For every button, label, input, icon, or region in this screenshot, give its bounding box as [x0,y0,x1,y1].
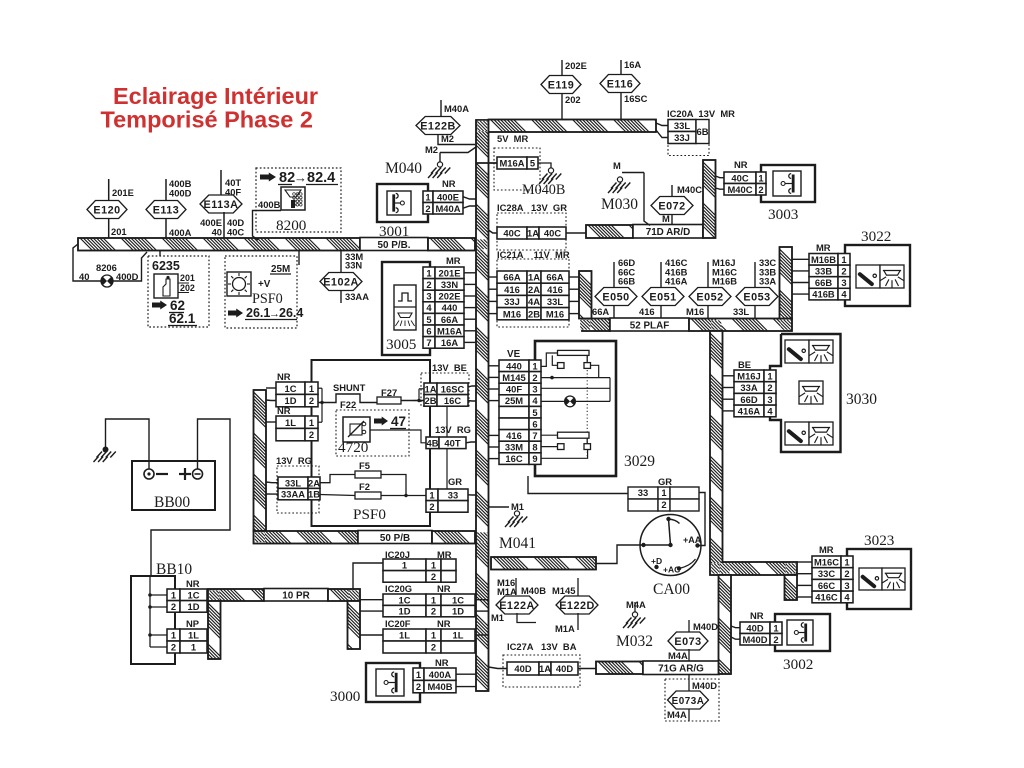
svg-text:E052: E052 [696,292,723,304]
svg-text:40F: 40F [506,384,522,395]
svg-text:M40C: M40C [727,184,752,195]
svg-text:E051: E051 [649,292,676,304]
svg-text:1: 1 [429,489,434,500]
svg-text:16SC: 16SC [624,93,648,104]
svg-text:M: M [613,160,621,171]
svg-text:1: 1 [425,191,430,202]
svg-text:202E: 202E [565,60,587,71]
svg-text:E102A: E102A [323,277,359,289]
svg-text:3: 3 [426,291,431,302]
svg-text:7: 7 [532,430,537,441]
svg-text:1: 1 [416,669,421,680]
svg-text:33AA: 33AA [345,291,369,302]
svg-text:202: 202 [180,283,195,293]
svg-text:1C: 1C [188,589,200,600]
svg-text:71D AR/D: 71D AR/D [646,227,691,238]
svg-text:M1A: M1A [555,623,575,634]
svg-text:F27: F27 [381,387,397,398]
svg-text:40C: 40C [227,227,244,238]
svg-text:4: 4 [844,592,850,603]
svg-text:16A: 16A [624,59,641,70]
svg-text:62.1: 62.1 [169,311,196,326]
svg-text:CA00: CA00 [653,581,690,598]
svg-text:1L: 1L [188,630,199,641]
svg-text:5: 5 [530,158,535,169]
svg-text:M: M [662,213,670,224]
svg-text:13V RG: 13V RG [276,455,312,466]
svg-text:3: 3 [767,394,772,405]
svg-text:201E: 201E [439,267,461,278]
svg-text:416A: 416A [738,406,761,417]
svg-text:33N: 33N [441,279,458,290]
svg-text:2: 2 [431,571,436,582]
svg-text:33L: 33L [285,477,301,488]
svg-text:1: 1 [532,360,537,371]
svg-text:1D: 1D [399,606,411,617]
svg-text:IC21A 11V MR: IC21A 11V MR [497,249,570,260]
svg-text:M145: M145 [502,372,525,383]
svg-text:5: 5 [532,407,537,418]
svg-text:2A: 2A [528,284,540,295]
svg-text:66B: 66B [815,277,832,288]
svg-text:IC20A 13V MR: IC20A 13V MR [667,108,735,119]
svg-text:9: 9 [532,453,537,464]
svg-text:NR: NR [186,578,200,589]
svg-text:1: 1 [309,417,314,428]
svg-text:33B: 33B [815,266,832,277]
svg-text:25M: 25M [271,264,290,275]
svg-text:1A: 1A [539,663,551,674]
svg-text:2: 2 [309,429,314,440]
svg-text:NR: NR [750,610,764,621]
svg-text:1D: 1D [452,606,464,617]
svg-text:7: 7 [426,337,431,348]
svg-text:SHUNT: SHUNT [333,382,366,393]
svg-text:2: 2 [661,499,666,510]
svg-text:66A: 66A [592,306,609,317]
svg-text:201: 201 [180,273,195,283]
svg-text:M40D: M40D [692,680,717,691]
svg-text:2B: 2B [425,395,437,406]
svg-text:E073: E073 [674,636,701,648]
svg-text:E053: E053 [743,292,770,304]
svg-text:BE: BE [738,359,751,370]
svg-text:40C: 40C [544,228,561,239]
svg-text:52 PLAF: 52 PLAF [630,320,669,331]
svg-text:M4A: M4A [626,599,646,610]
svg-text:1: 1 [171,630,176,641]
svg-text:M040: M040 [385,160,422,177]
svg-text:66A: 66A [503,272,520,283]
svg-text:M032: M032 [616,633,653,650]
svg-text:IC28A 13V GR: IC28A 13V GR [497,202,567,213]
svg-text:1: 1 [171,589,176,600]
svg-text:416: 416 [639,306,655,317]
svg-text:F2: F2 [359,481,370,492]
svg-text:4: 4 [767,406,773,417]
svg-text:E119: E119 [548,80,575,92]
svg-text:8: 8 [532,442,537,453]
svg-text:M16B: M16B [712,276,737,287]
svg-text:4: 4 [841,289,847,300]
svg-text:3: 3 [532,384,537,395]
svg-text:3005: 3005 [386,336,416,353]
svg-text:10 PR: 10 PR [282,591,309,602]
svg-text:16A: 16A [441,337,458,348]
svg-text:M40D: M40D [742,634,767,645]
svg-text:71G AR/G: 71G AR/G [658,664,704,675]
svg-text:201E: 201E [112,187,134,198]
svg-text:202E: 202E [439,291,461,302]
svg-text:16C: 16C [505,453,522,464]
svg-text:Eclairage Intérieur: Eclairage Intérieur [113,83,318,109]
svg-text:2: 2 [841,266,846,277]
svg-text:1L: 1L [453,630,464,641]
svg-text:M145: M145 [552,585,575,596]
svg-text:GR: GR [658,476,672,487]
svg-text:66C: 66C [818,580,835,591]
svg-text:NR: NR [277,405,291,416]
svg-text:1: 1 [309,383,314,394]
svg-text:4720: 4720 [338,439,369,456]
svg-text:3030: 3030 [846,391,877,408]
svg-text:+AC: +AC [663,565,680,575]
svg-text:400A: 400A [169,227,192,238]
svg-text:NR: NR [442,178,456,189]
svg-text:E122B: E122B [420,121,456,133]
svg-text:1C: 1C [452,594,464,605]
svg-text:+V: +V [258,279,271,290]
svg-text:M40B: M40B [521,585,546,596]
svg-text:2: 2 [171,642,176,653]
svg-text:2: 2 [758,184,763,195]
svg-text:13V RG: 13V RG [435,424,471,435]
svg-text:F5: F5 [359,460,370,471]
svg-text:GR: GR [448,476,462,487]
svg-text:33C: 33C [818,568,835,579]
svg-text:M040B: M040B [522,182,565,198]
svg-text:3029: 3029 [624,453,655,470]
svg-text:E050: E050 [602,292,629,304]
svg-text:M40A: M40A [444,103,469,114]
svg-text:40C: 40C [731,172,748,183]
svg-text:3023: 3023 [864,532,894,549]
svg-text:+AA: +AA [683,535,702,545]
svg-text:50 P/B.: 50 P/B. [378,240,411,251]
svg-text:416: 416 [547,284,563,295]
svg-text:VE: VE [507,349,521,360]
svg-text:4A: 4A [528,296,540,307]
svg-text:47: 47 [391,414,406,429]
svg-text:416A: 416A [665,276,688,287]
svg-text:M2: M2 [441,133,454,144]
svg-text:1: 1 [767,370,772,381]
svg-text:13V BE: 13V BE [432,362,467,373]
svg-text:8200: 8200 [276,217,307,234]
svg-text:1: 1 [841,254,846,265]
svg-text:MR: MR [819,544,834,555]
svg-text:416C: 416C [815,592,838,603]
svg-text:1D: 1D [188,601,200,612]
svg-text:440: 440 [442,302,458,313]
svg-text:40D: 40D [746,622,763,633]
svg-text:3: 3 [841,277,846,288]
svg-text:26.4: 26.4 [279,306,303,320]
svg-text:1: 1 [431,559,436,570]
svg-text:1B: 1B [308,489,320,500]
svg-text:1: 1 [844,556,849,567]
svg-text:F22: F22 [340,399,356,410]
svg-text:E116: E116 [607,79,634,91]
svg-text:4B: 4B [427,437,439,448]
svg-text:1L: 1L [399,630,410,641]
svg-text:6: 6 [426,325,431,336]
svg-text:26.1: 26.1 [246,306,270,320]
svg-text:2: 2 [844,568,849,579]
svg-text:33J: 33J [674,132,690,143]
svg-text:66B: 66B [618,276,635,287]
svg-text:3000: 3000 [330,688,361,705]
svg-text:1: 1 [426,267,431,278]
svg-text:M16: M16 [546,308,564,319]
svg-text:82: 82 [279,170,295,186]
svg-text:40C: 40C [503,228,520,239]
svg-text:40D: 40D [556,663,573,674]
svg-text:33L: 33L [547,296,563,307]
svg-text:2: 2 [773,634,778,645]
svg-text:IC20G: IC20G [385,583,412,594]
svg-text:1A: 1A [527,228,539,239]
svg-text:4: 4 [532,395,538,406]
svg-text:M16C: M16C [814,556,839,567]
svg-text:M041: M041 [499,535,536,552]
svg-text:1: 1 [402,559,407,570]
svg-text:1C: 1C [285,383,297,394]
svg-text:Temporisé Phase 2: Temporisé Phase 2 [101,107,313,133]
svg-text:201: 201 [111,226,127,237]
svg-text:IC27A 13V BA: IC27A 13V BA [507,641,577,652]
svg-text:1: 1 [661,487,666,498]
svg-text:NR: NR [277,371,291,382]
svg-text:E113: E113 [153,205,180,217]
svg-text:2: 2 [431,606,436,617]
svg-text:16C: 16C [444,395,461,406]
svg-text:33A: 33A [740,382,757,393]
svg-text:M4A: M4A [668,650,688,661]
svg-text:16SC: 16SC [441,383,465,394]
svg-text:66D: 66D [740,394,757,405]
svg-text:1A: 1A [528,272,540,283]
svg-text:25M: 25M [505,395,523,406]
svg-text:3002: 3002 [783,656,813,673]
svg-text:2: 2 [416,681,421,692]
svg-text:NR: NR [437,583,451,594]
svg-text:416: 416 [504,284,520,295]
svg-text:M1: M1 [491,612,504,623]
svg-text:M4A: M4A [667,709,687,720]
svg-text:E072: E072 [658,201,685,213]
svg-text:2: 2 [425,203,430,214]
svg-text:2: 2 [532,372,537,383]
svg-text:33M: 33M [505,442,523,453]
svg-text:6235: 6235 [152,259,180,273]
svg-text:202: 202 [565,94,581,105]
svg-text:3001: 3001 [379,223,409,240]
svg-text:M16A: M16A [499,158,524,169]
svg-text:3003: 3003 [768,206,798,223]
svg-text:8206: 8206 [96,262,117,273]
svg-text:1: 1 [191,642,196,653]
svg-text:NR: NR [437,618,451,629]
svg-text:E073A: E073A [672,696,705,707]
svg-text:M40B: M40B [427,681,452,692]
svg-text:3: 3 [844,580,849,591]
svg-text:E122D: E122D [559,600,595,612]
svg-text:E120: E120 [93,205,120,217]
svg-text:M16: M16 [503,308,521,319]
svg-text:1: 1 [431,594,436,605]
svg-text:1: 1 [773,622,778,633]
svg-text:+D: +D [651,556,662,566]
svg-text:PSF0: PSF0 [353,506,386,523]
svg-text:1C: 1C [399,594,411,605]
svg-text:M16B: M16B [811,254,836,265]
svg-text:40: 40 [79,271,89,282]
svg-text:2: 2 [429,501,434,512]
svg-text:400D: 400D [169,188,192,199]
svg-text:400D: 400D [116,271,139,282]
svg-text:416: 416 [506,430,522,441]
svg-text:33N: 33N [345,260,362,271]
svg-text:M16J: M16J [737,370,760,381]
svg-text:M16A: M16A [437,325,462,336]
svg-text:E113A: E113A [204,199,239,211]
svg-text:2: 2 [767,382,772,393]
svg-text:M40A: M40A [435,203,460,214]
svg-text:IC20F: IC20F [385,618,411,629]
svg-text:M16: M16 [686,306,704,317]
svg-text:6: 6 [532,418,537,429]
svg-text:NR: NR [435,657,449,668]
svg-text:NR: NR [734,159,748,170]
svg-text:66A: 66A [546,272,563,283]
svg-text:MR: MR [816,242,831,253]
svg-text:2: 2 [426,279,431,290]
svg-text:33: 33 [638,487,648,498]
svg-text:5: 5 [426,314,431,325]
svg-text:40D: 40D [514,663,531,674]
svg-text:33L: 33L [674,120,690,131]
svg-text:6B: 6B [697,126,709,137]
svg-text:1: 1 [431,630,436,641]
svg-text:2: 2 [431,642,436,653]
svg-text:400A: 400A [429,669,452,680]
svg-text:1A: 1A [425,383,437,394]
svg-text:33L: 33L [733,306,749,317]
svg-text:2: 2 [309,395,314,406]
svg-text:NP: NP [186,618,199,629]
svg-text:M030: M030 [601,196,638,213]
svg-text:2: 2 [171,601,176,612]
svg-text:40: 40 [212,227,222,238]
svg-text:MR: MR [446,255,461,266]
svg-text:33AA: 33AA [281,489,305,500]
svg-text:66A: 66A [441,314,458,325]
svg-text:33: 33 [448,489,458,500]
svg-text:50 P/B: 50 P/B [380,533,410,544]
svg-text:M40C: M40C [677,184,702,195]
svg-text:M2: M2 [425,144,438,155]
svg-text:2B: 2B [528,308,540,319]
svg-text:40T: 40T [444,437,460,448]
svg-text:PSF0: PSF0 [252,291,283,307]
svg-text:1: 1 [758,172,763,183]
svg-text:1L: 1L [285,417,296,428]
svg-text:416B: 416B [812,289,835,300]
svg-text:440: 440 [506,360,522,371]
svg-text:82.4: 82.4 [307,170,335,186]
svg-text:400B: 400B [258,199,281,210]
svg-text:2A: 2A [308,477,320,488]
svg-text:BB00: BB00 [154,494,190,511]
svg-text:5V MR: 5V MR [497,133,528,144]
svg-text:33A: 33A [759,276,776,287]
svg-text:→: → [294,170,307,185]
svg-text:M40D: M40D [693,621,718,632]
svg-text:E122A: E122A [499,600,535,612]
svg-text:400E: 400E [437,191,459,202]
svg-text:4: 4 [426,302,432,313]
svg-text:33J: 33J [504,296,520,307]
svg-text:3022: 3022 [861,228,891,245]
